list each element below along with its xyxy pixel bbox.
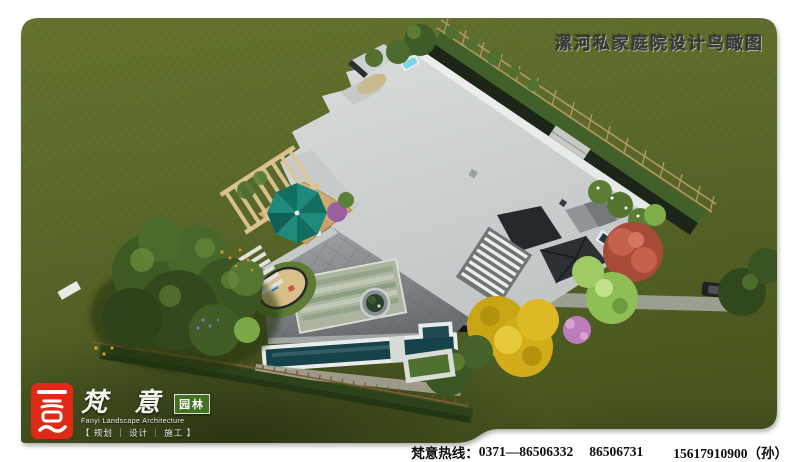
light-shrub <box>234 317 260 343</box>
brand-services: 【 规划 ｜ 设计 ｜ 施工 】 <box>81 427 210 439</box>
brand-name: 梵 意 <box>81 390 169 416</box>
presentation-board: 漯河私家庭院设计鸟瞰图 梵 意 园林 Fanyi Landscape Archi… <box>0 0 800 462</box>
company-seal-icon <box>30 382 74 440</box>
logo-text-block: 梵 意 园林 Fanyi Landscape Architecture 【 规划… <box>81 382 210 439</box>
pink-shrub <box>563 316 591 344</box>
parasol-umbrella <box>267 183 327 243</box>
brand-english-name: Fanyi Landscape Architecture <box>81 418 210 425</box>
hotline-label: 梵意热线： <box>411 442 479 462</box>
hotline-phone-2: 86506731 <box>589 444 643 460</box>
water-feature <box>361 289 389 317</box>
hotline-phone-1: 0371—86506332 <box>479 444 574 460</box>
hotline-phone-3: 15617910900（孙） <box>673 442 788 462</box>
company-logo: 梵 意 园林 Fanyi Landscape Architecture 【 规划… <box>30 382 210 440</box>
render-title: 漯河私家庭院设计鸟瞰图 <box>555 29 764 54</box>
brand-type-badge: 园林 <box>174 394 210 414</box>
hotline-bar: 梵意热线： 0371—86506332 86506731 15617910900… <box>411 443 788 460</box>
